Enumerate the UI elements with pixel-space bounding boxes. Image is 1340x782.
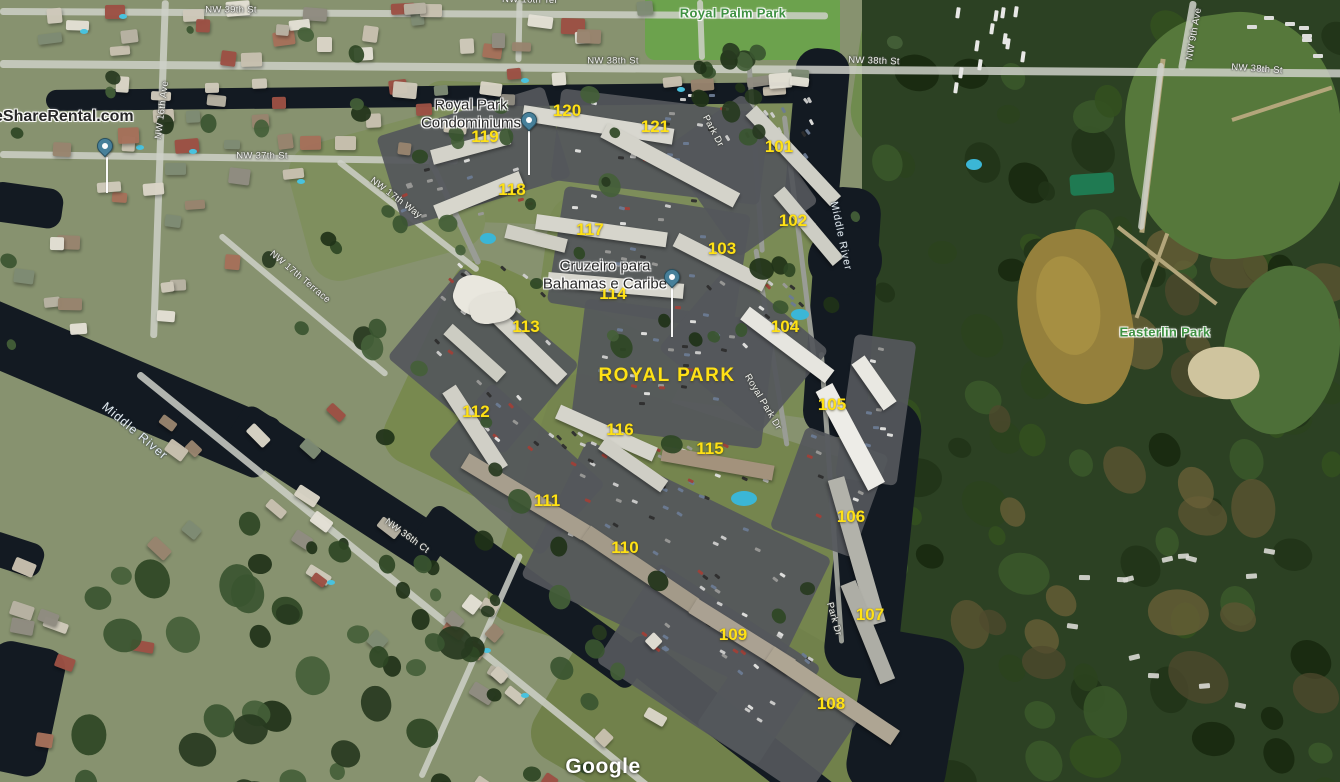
road-label-nw-38th-st-4: NW 38th St <box>1231 62 1283 77</box>
place-pin-royal-park-condominiums-leader-line <box>528 131 530 175</box>
building-number-116: 116 <box>606 420 633 440</box>
poi-label-royal-park-condominiums-line-1: Royal Park <box>421 97 521 115</box>
road-label-nw-17th-way-7: NW 17th Way <box>368 175 424 221</box>
building-number-111: 111 <box>534 491 561 511</box>
water-label-middle-river-1: Middle River <box>99 399 170 462</box>
building-number-110: 110 <box>611 538 638 558</box>
park-label-royal-palm-park: Royal Palm Park <box>680 6 786 21</box>
building-number-109: 109 <box>719 625 747 645</box>
building-number-101: 101 <box>765 137 793 157</box>
building-number-102: 102 <box>779 211 807 231</box>
building-number-105: 105 <box>818 395 846 415</box>
road-label-park-dr-12: Park Dr <box>700 113 726 148</box>
building-number-112: 112 <box>462 402 489 422</box>
road-label-nw-9th-ave-9: NW 9th Ave <box>1184 7 1204 61</box>
place-pin-esharerental-icon <box>94 135 117 158</box>
building-number-106: 106 <box>837 507 865 527</box>
building-number-115: 115 <box>696 439 723 459</box>
road-label-royal-park-dr-11: Royal Park Dr <box>742 372 784 432</box>
poi-label-cruzeiro-para-bahamas-e-caribe: Cruzeiro paraBahamas e Caribe <box>543 258 667 295</box>
place-pin-royal-park-condominiums-icon <box>518 109 541 132</box>
building-number-103: 103 <box>708 239 736 259</box>
road-label-nw-16th-ave-6: NW 16th Ave <box>153 80 171 139</box>
road-label-nw-16th-ter-1: NW 16th Ter <box>502 0 558 6</box>
poi-label-royal-park-condominiums-line-2: Condominiums <box>421 115 521 133</box>
road-label-park-dr-13: Park Dr <box>824 601 844 637</box>
road-label-nw-17th-terrace-8: NW 17th Terrace <box>268 248 333 305</box>
poi-label-royal-park-condominiums: Royal ParkCondominiums <box>421 97 521 134</box>
road-label-nw-38th-st-3: NW 38th St <box>848 55 900 68</box>
building-number-104: 104 <box>771 317 799 337</box>
place-pin-cruzeiro-para-bahamas-e-caribe-dot <box>668 273 676 281</box>
water-label-middle-river-0: Middle River <box>828 200 854 271</box>
building-number-120: 120 <box>553 101 581 121</box>
building-number-113: 113 <box>512 317 539 337</box>
poi-label-cruzeiro-para-bahamas-e-caribe-line-2: Bahamas e Caribe <box>543 276 667 294</box>
poi-label-esharerental: eShareRental.com <box>0 107 134 127</box>
building-number-117: 117 <box>576 220 603 240</box>
google-logo[interactable]: Google <box>565 755 640 779</box>
place-pin-royal-park-condominiums-dot <box>525 116 533 124</box>
place-pin-esharerental-leader-line <box>106 157 108 193</box>
park-label-easterlin-park: Easterlin Park <box>1120 325 1211 340</box>
road-label-nw-36th-ct-10: NW 36th Ct <box>383 516 432 556</box>
road-label-nw-37th-st-5: NW 37th St <box>236 151 288 162</box>
building-number-108: 108 <box>817 694 845 714</box>
road-label-nw-39th-st-0: NW 39th St <box>205 5 257 16</box>
building-number-121: 121 <box>641 117 669 137</box>
complex-label-royal-park: ROYAL PARK <box>598 365 735 387</box>
map-labels: 1011021031041051061071081091101111121131… <box>0 0 1340 782</box>
poi-label-cruzeiro-para-bahamas-e-caribe-line-1: Cruzeiro para <box>543 258 667 276</box>
place-pin-esharerental-dot <box>101 142 109 150</box>
road-label-nw-38th-st-2: NW 38th St <box>587 56 639 67</box>
building-number-107: 107 <box>856 605 884 625</box>
place-pin-cruzeiro-para-bahamas-e-caribe-leader-line <box>671 288 673 337</box>
building-number-118: 118 <box>498 180 525 200</box>
map-canvas[interactable]: 1011021031041051061071081091101111121131… <box>0 0 1340 782</box>
